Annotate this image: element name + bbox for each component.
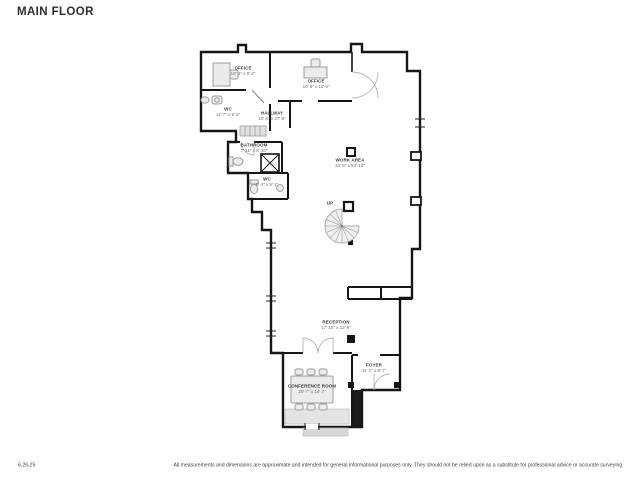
conference-opening (306, 424, 318, 429)
shower-stall-icon (261, 154, 279, 172)
column-icon (347, 335, 355, 343)
footer: 6.26.25 All measurements and dimensions … (0, 460, 640, 472)
column-icon (411, 197, 421, 205)
entry-stoop (303, 428, 348, 436)
footer-date: 6.26.25 (18, 462, 35, 468)
column-icon (344, 202, 353, 211)
conference-porch (285, 409, 349, 424)
floor-plan-drawing (0, 0, 640, 480)
straight-stair-icon (240, 126, 266, 136)
footer-disclaimer: All measurements and dimensions are appr… (174, 462, 624, 468)
wall-mass (352, 390, 362, 427)
bathroom-toilet-icon (229, 157, 243, 166)
column-icon (411, 152, 421, 160)
column-icon (348, 382, 354, 388)
floor-plan-page: MAIN FLOOR (0, 0, 640, 480)
column-icon (347, 148, 355, 156)
column-icon (394, 382, 400, 388)
